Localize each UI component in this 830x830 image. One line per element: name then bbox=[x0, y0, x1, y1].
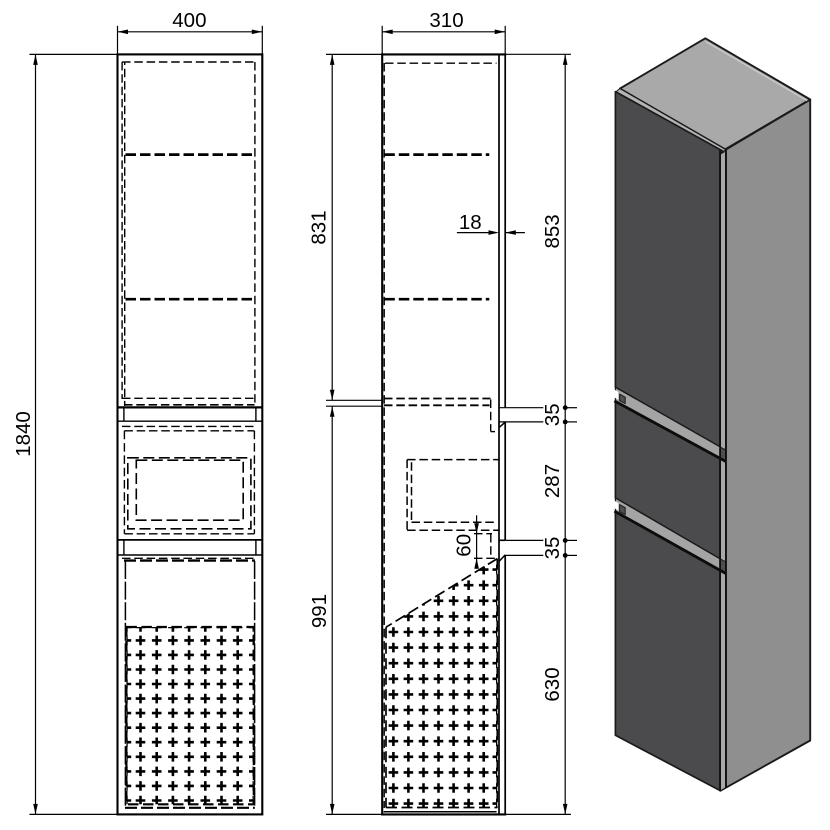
svg-text:18: 18 bbox=[459, 211, 482, 234]
svg-text:853: 853 bbox=[541, 214, 564, 248]
svg-text:35: 35 bbox=[541, 537, 564, 560]
svg-text:400: 400 bbox=[172, 9, 206, 32]
svg-text:35: 35 bbox=[541, 403, 564, 426]
svg-text:630: 630 bbox=[541, 667, 564, 701]
svg-text:287: 287 bbox=[541, 464, 564, 498]
svg-text:60: 60 bbox=[453, 534, 476, 557]
svg-text:310: 310 bbox=[429, 9, 463, 32]
svg-text:831: 831 bbox=[308, 210, 331, 244]
svg-text:991: 991 bbox=[308, 594, 331, 628]
svg-text:1840: 1840 bbox=[12, 411, 35, 457]
